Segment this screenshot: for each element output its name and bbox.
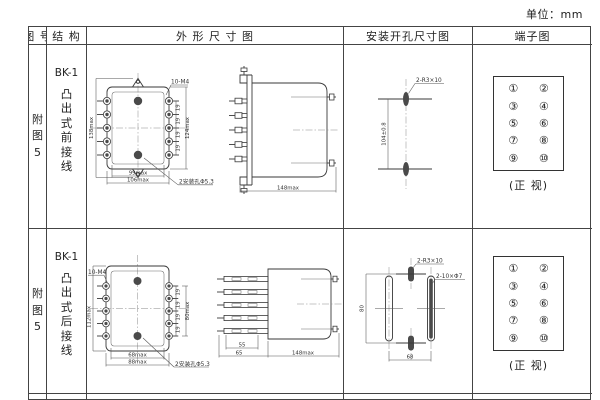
terminal-7: ⑦ <box>508 135 518 146</box>
outline-drawing-row2: 10-M4 112max 19 19 19 19 <box>87 229 344 394</box>
table-sliver-cell <box>473 394 592 400</box>
terminal-6: ⑥ <box>539 118 549 129</box>
terminal-7: ⑦ <box>508 315 518 326</box>
drawing-table: 图 号 结 构 外 形 尺 寸 图 安装开孔尺寸图 端子图 附 图 5 BK-1… <box>28 26 591 400</box>
terminal-2: ② <box>539 83 549 94</box>
rear-pins <box>217 276 268 333</box>
terminal-3: ③ <box>508 101 518 112</box>
unit-label: 单位：mm <box>526 6 583 22</box>
table-sliver-cell <box>47 394 87 400</box>
side-view-drawing: 55 65 148max <box>217 269 342 358</box>
terminal-2: ② <box>539 263 549 274</box>
slot-callout-label: 2-R3×10 <box>417 259 443 265</box>
front-view-drawing: 138max 19 19 19 19 124max 10-M4 <box>89 73 214 186</box>
dim-pitch-label: 19 <box>176 288 182 295</box>
terminal-box: ① ② ③ ④ ⑤ ⑥ ⑦ ⑧ ⑨ ⑩ <box>493 256 564 351</box>
terminal-caption: (正 视) <box>493 177 564 193</box>
dim-pitch-label: 19 <box>176 301 182 308</box>
header-figure: 图 号 <box>29 27 47 45</box>
terminal-8: ⑧ <box>539 315 549 326</box>
table-sliver-cell <box>344 394 473 400</box>
terminal-8: ⑧ <box>539 135 549 146</box>
terminal-10: ⑩ <box>539 153 549 164</box>
dim-slot-spacing-label: 80 <box>360 305 366 312</box>
terminal-studs-left <box>97 283 109 340</box>
dim-pitch-label: 19 <box>176 104 182 111</box>
dim-height-label: 112max <box>87 305 93 328</box>
dim-pitch-label: 19 <box>176 326 182 333</box>
front-view-drawing: 10-M4 112max 19 19 19 19 <box>87 255 210 368</box>
dim-hole-span-label: 99max <box>129 171 148 177</box>
dim-pitch-label: 19 <box>176 313 182 320</box>
slot-callout-label-2: 2-10×Φ7 <box>436 274 463 280</box>
header-mounting: 安装开孔尺寸图 <box>344 27 473 45</box>
terminal-box: ① ② ③ ④ ⑤ ⑥ ⑦ ⑧ ⑨ ⑩ <box>493 76 564 171</box>
dim-pitch-label: 19 <box>176 144 182 151</box>
terminal-caption: (正 视) <box>493 357 564 373</box>
dim-terminal-span-label: 124max <box>185 116 191 139</box>
dim-pins-label: 55 <box>239 342 246 348</box>
header-outline: 外 形 尺 寸 图 <box>87 27 344 45</box>
header-terminal: 端子图 <box>473 27 592 45</box>
datasheet-page: 单位：mm 图 号 结 构 外 形 尺 寸 图 安装开孔尺寸图 端子图 附 图 … <box>0 0 600 400</box>
terminal-9: ⑨ <box>508 153 518 164</box>
dim-width-label: 106max <box>127 178 150 184</box>
terminal-3: ③ <box>508 281 518 292</box>
dim-depth-label: 148max <box>277 185 300 191</box>
side-terminals <box>229 98 247 162</box>
screw-note-label: 10-M4 <box>171 80 189 86</box>
terminal-4: ④ <box>539 101 549 112</box>
figure-no-row1: 附 图 5 <box>29 45 47 229</box>
terminal-10: ⑩ <box>539 333 549 344</box>
terminal-5: ⑤ <box>508 118 518 129</box>
dim-pitch-label: 19 <box>176 117 182 124</box>
table-sliver-cell <box>87 394 344 400</box>
outline-drawing-row1: 138max 19 19 19 19 124max 10-M4 <box>87 45 344 229</box>
side-view-drawing: 148max <box>229 66 339 194</box>
outline-front-side-views-row1: 138max 19 19 19 19 124max 10-M4 <box>87 45 344 229</box>
terminal-1: ① <box>508 83 518 94</box>
mounting-hole-note: 2安装孔Φ5.3 <box>175 360 210 368</box>
dim-pitch-label: 19 <box>176 131 182 138</box>
terminal-studs-left <box>97 97 111 158</box>
structure-row2: BK-1 凸 出 式 后 接 线 <box>47 229 87 394</box>
dim-hole-span-label: 68max <box>128 353 147 359</box>
mounting-holes-row1: 104±0.8 2-R3×10 <box>344 45 473 229</box>
terminal-diagram-row1: ① ② ③ ④ ⑤ ⑥ ⑦ ⑧ ⑨ ⑩ (正 视) <box>473 45 592 229</box>
mounting-slots-row2: 80 68 2-R3×10 2-10×Φ7 <box>344 229 473 394</box>
terminal-9: ⑨ <box>508 333 518 344</box>
dim-front-label: 65 <box>236 350 243 356</box>
mounting-drawing-row2: 80 68 2-R3×10 2-10×Φ7 <box>344 229 473 394</box>
terminal-4: ④ <box>539 281 549 292</box>
hole-callout-label: 2-R3×10 <box>416 78 442 84</box>
terminal-5: ⑤ <box>508 298 518 309</box>
header-structure: 结 构 <box>47 27 87 45</box>
structure-label: 凸 出 式 前 接 线 <box>61 87 73 173</box>
terminal-1: ① <box>508 263 518 274</box>
dim-width-label: 88max <box>128 360 147 366</box>
model-label: BK-1 <box>55 251 78 263</box>
dim-terminal-span-label: 80max <box>185 301 191 320</box>
dim-height-label: 138max <box>89 116 95 139</box>
mounting-hole-note: 2安装孔Φ5.3 <box>179 178 214 186</box>
figure-no-row2: 附 图 5 <box>29 229 47 394</box>
terminal-diagram-row2: ① ② ③ ④ ⑤ ⑥ ⑦ ⑧ ⑨ ⑩ (正 视) <box>473 229 592 394</box>
structure-row1: BK-1 凸 出 式 前 接 线 <box>47 45 87 229</box>
mounting-drawing-row1: 104±0.8 2-R3×10 <box>344 45 473 229</box>
outline-front-side-views-row2: 10-M4 112max 19 19 19 19 <box>87 229 344 394</box>
terminal-6: ⑥ <box>539 298 549 309</box>
table-sliver-cell <box>29 394 47 400</box>
structure-label: 凸 出 式 后 接 线 <box>61 271 73 357</box>
model-label: BK-1 <box>55 67 78 79</box>
dim-hole-spacing-label: 104±0.8 <box>382 122 388 146</box>
dim-depth-label: 148max <box>292 350 315 356</box>
dim-slot-span-label: 68 <box>407 355 414 361</box>
